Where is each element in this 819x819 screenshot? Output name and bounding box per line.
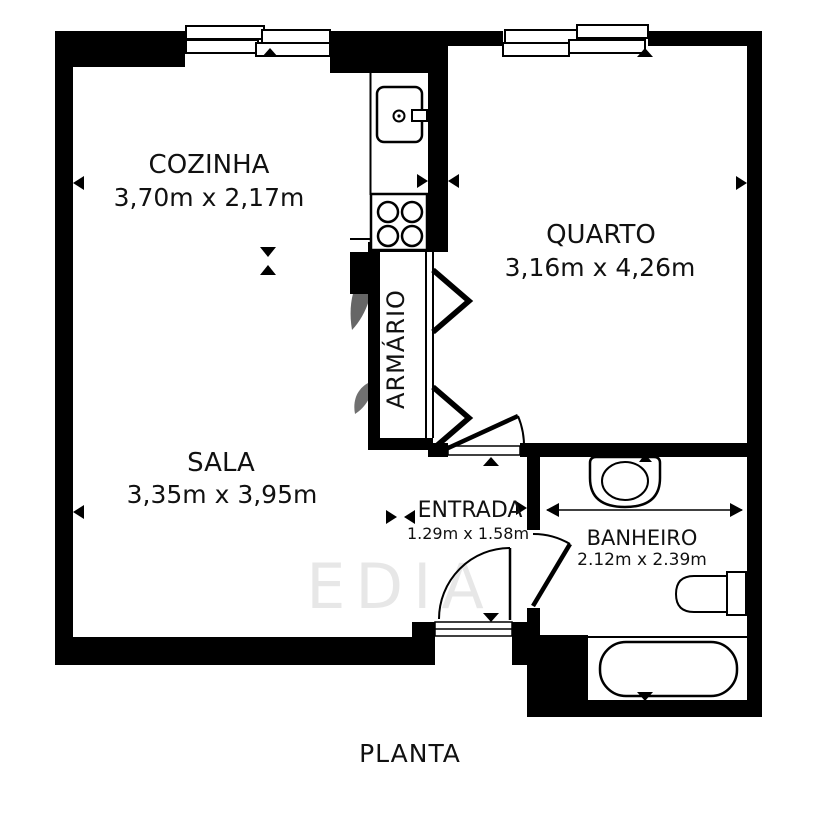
watermark-text: EDIA — [306, 550, 494, 623]
toilet-icon — [676, 572, 746, 615]
dims-banheiro: 2.12m x 2.39m — [577, 550, 707, 570]
tick-left-icon — [404, 510, 415, 524]
label-banheiro: BANHEIRO — [587, 526, 698, 550]
window-pane — [569, 40, 645, 53]
tick-right-icon — [736, 176, 747, 190]
cozinha-window — [186, 26, 330, 56]
bathtub-icon — [600, 642, 737, 696]
sink-icon — [590, 457, 660, 507]
plan-caption: PLANTA — [359, 739, 461, 768]
window-pane — [577, 25, 648, 38]
bifold-door-chevron — [433, 270, 469, 332]
dims-cozinha: 3,70m x 2,17m — [114, 183, 305, 212]
quarto-door — [446, 416, 524, 455]
wall-sala-bottom — [55, 637, 412, 665]
closet-bifold-doors — [426, 252, 469, 449]
wall-top-quarto-right — [648, 31, 762, 46]
banheiro-door — [533, 534, 570, 606]
door-leaf — [446, 416, 518, 449]
quarto-window — [503, 25, 648, 56]
window-pane — [186, 40, 258, 53]
tick-left-icon — [73, 176, 84, 190]
wall-top-cozinha — [55, 31, 185, 67]
window-pane — [262, 30, 330, 43]
door-swing-arc — [533, 534, 570, 544]
dims-quarto: 3,16m x 4,26m — [505, 253, 696, 282]
wall-top-quarto-left — [448, 31, 503, 46]
floor-plan: EDIA — [0, 0, 819, 819]
tick-up-icon — [260, 265, 276, 275]
label-cozinha: COZINHA — [149, 150, 270, 180]
label-quarto: QUARTO — [546, 220, 656, 250]
tick-right-icon — [386, 510, 397, 524]
label-entrada: ENTRADA — [418, 498, 523, 523]
label-sala: SALA — [187, 448, 255, 478]
wall-right — [747, 31, 762, 717]
wall-banheiro-bottom — [585, 700, 762, 717]
dim-arrow-right-icon — [730, 503, 743, 517]
fridge-icon — [377, 87, 427, 142]
tick-left-icon — [73, 505, 84, 519]
window-pane — [186, 26, 264, 39]
wall-cozinha-quarto — [428, 31, 448, 252]
wall-entry-right-block — [512, 622, 538, 665]
door-leaf — [533, 544, 570, 606]
tick-right-icon — [417, 174, 428, 188]
tick-up-icon — [483, 457, 499, 466]
stove-icon — [371, 194, 427, 250]
wall-armario-bottom — [368, 438, 433, 450]
dims-entrada: 1.29m x 1.58m — [407, 524, 529, 543]
dim-arrow-left-icon — [546, 503, 559, 517]
dims-sala: 3,35m x 3,95m — [127, 480, 318, 509]
wall-entry-left-block — [412, 622, 435, 665]
wall-stub-sala — [350, 252, 370, 294]
tick-down-icon — [260, 247, 276, 257]
label-armario: ARMÁRIO — [381, 289, 410, 409]
wall-banheiro-top — [520, 443, 762, 457]
tick-left-icon — [448, 174, 459, 188]
wall-armario-left — [368, 252, 380, 448]
floor-plan-drawing: EDIA — [0, 0, 819, 819]
door-threshold — [448, 446, 520, 455]
window-pane — [503, 43, 569, 56]
wall-left — [55, 31, 73, 665]
wall-banheiro-left-upper — [527, 443, 540, 530]
kitchen-fixtures — [350, 67, 427, 250]
